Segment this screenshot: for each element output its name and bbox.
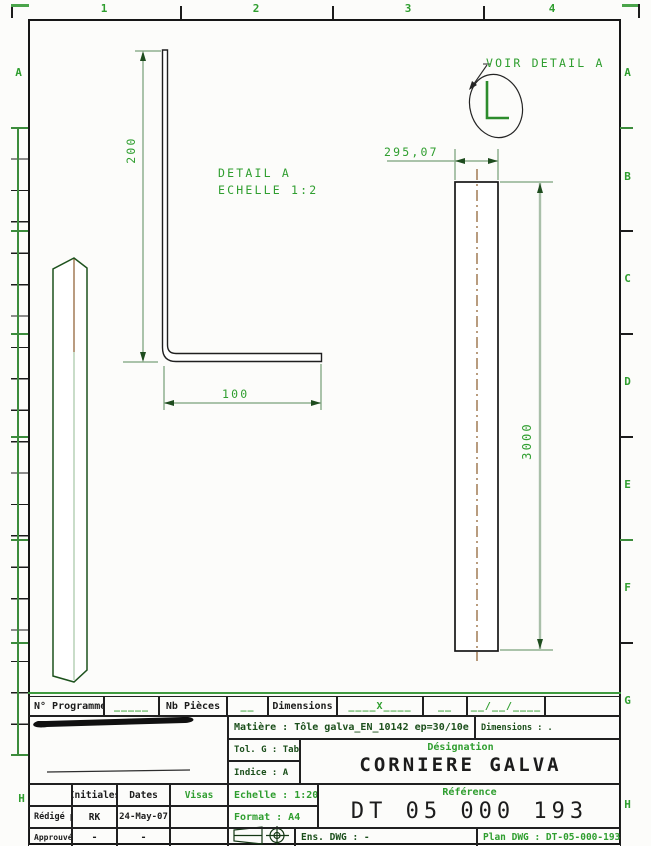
plan-dwg-cell: Plan DWG : DT-05-000-193 bbox=[477, 828, 621, 846]
empty-cell bbox=[545, 696, 621, 716]
title-block: N° Programme _____ Nb Pièces __ Dimensio… bbox=[28, 692, 621, 845]
format-cell: Format : A4 bbox=[228, 806, 318, 828]
pieces-label: Nb Pièces bbox=[159, 696, 227, 716]
dim-3000: 3000 bbox=[520, 419, 534, 463]
zone-tick bbox=[620, 230, 633, 232]
ens-dwg-cell: Ens. DWG : - bbox=[295, 828, 477, 846]
zone-tick bbox=[620, 436, 633, 438]
designation-label: Désignation bbox=[301, 742, 620, 753]
margin-ruler-line bbox=[17, 127, 19, 756]
ruler-major-tick bbox=[11, 230, 28, 232]
date-placeholder: __/__/____ bbox=[467, 696, 545, 716]
approval-corner bbox=[28, 784, 72, 806]
projection-symbol-box bbox=[228, 828, 295, 846]
designation-box: Désignation CORNIERE GALVA bbox=[300, 739, 621, 784]
callout-label: VOIR DETAIL A bbox=[486, 56, 605, 70]
redige-visa bbox=[170, 806, 228, 828]
dimensions-value: ____X____ bbox=[337, 696, 423, 716]
zone-col-2: 2 bbox=[246, 2, 266, 15]
zone-tick bbox=[620, 127, 633, 129]
zone-col-3: 3 bbox=[398, 2, 418, 15]
dim-295: 295,07 bbox=[384, 145, 439, 159]
trim-mark-top-left-h bbox=[11, 4, 29, 7]
zone-row-a: A bbox=[621, 66, 634, 79]
program-label: N° Programme bbox=[28, 696, 104, 716]
redige-initiales: RK bbox=[72, 806, 117, 828]
reference-box: Référence DT 05 000 193 bbox=[318, 784, 621, 828]
zone-row-left-a: A bbox=[12, 66, 25, 79]
program-value: _____ bbox=[104, 696, 159, 716]
approuve-visa bbox=[170, 828, 228, 846]
dim-200: 200 bbox=[124, 129, 138, 171]
zone-tick bbox=[620, 333, 633, 335]
approuve-date: - bbox=[117, 828, 170, 846]
tolerance-cell: Tol. G : Tableau bbox=[228, 739, 300, 761]
zone-col-1: 1 bbox=[94, 2, 114, 15]
ruler-major-tick bbox=[11, 333, 28, 335]
dimensions-extra: __ bbox=[423, 696, 467, 716]
signature-box bbox=[28, 716, 228, 784]
redige-date: 24-May-07 bbox=[117, 806, 170, 828]
zone-col-4: 4 bbox=[542, 2, 562, 15]
zone-row-d: D bbox=[621, 375, 634, 388]
trim-mark-top-right bbox=[638, 4, 640, 18]
zone-row-e: E bbox=[621, 478, 634, 491]
zone-tick bbox=[180, 6, 182, 19]
detail-title: DETAIL A bbox=[218, 166, 291, 180]
zone-row-f: F bbox=[621, 581, 634, 594]
dimensions-note: Dimensions : . bbox=[475, 716, 621, 739]
zone-tick bbox=[332, 6, 334, 19]
zone-row-left-h: H bbox=[15, 792, 28, 805]
zone-tick bbox=[620, 642, 633, 644]
margin-ruler bbox=[11, 127, 28, 756]
zone-row-g: G bbox=[621, 694, 634, 707]
indice-cell: Indice : A bbox=[228, 761, 300, 784]
detail-scale: ECHELLE 1:2 bbox=[218, 183, 318, 197]
zone-tick bbox=[483, 6, 485, 19]
ruler-major-tick bbox=[11, 436, 28, 438]
redige-label: Rédigé par bbox=[28, 806, 72, 828]
ruler-major-tick bbox=[11, 127, 28, 129]
zone-row-b: B bbox=[621, 170, 634, 183]
ruler-major-tick bbox=[11, 642, 28, 644]
dim-100: 100 bbox=[222, 387, 249, 401]
approuve-initiales: - bbox=[72, 828, 117, 846]
ruler-major-tick bbox=[11, 754, 28, 756]
drawing-sheet: 1 2 3 4 A B C D E F G H A H bbox=[0, 0, 651, 846]
ruler-major-tick bbox=[11, 539, 28, 541]
visas-header: Visas bbox=[170, 784, 228, 806]
zone-tick bbox=[620, 539, 633, 541]
zone-row-c: C bbox=[621, 272, 634, 285]
initiales-header: Initiales bbox=[72, 784, 117, 806]
dimensions-label: Dimensions bbox=[268, 696, 337, 716]
dates-header: Dates bbox=[117, 784, 170, 806]
zone-row-h: H bbox=[621, 798, 634, 811]
pieces-value: __ bbox=[227, 696, 268, 716]
designation-value: CORNIERE GALVA bbox=[301, 754, 620, 776]
reference-value: DT 05 000 193 bbox=[319, 799, 620, 824]
matiere-cell: Matière : Tôle galva_EN_10142 ep=30/10e bbox=[228, 716, 475, 739]
echelle-cell: Echelle : 1:20 bbox=[228, 784, 318, 806]
reference-label: Référence bbox=[319, 787, 620, 798]
approuve-label: Approuvé par bbox=[28, 828, 72, 846]
